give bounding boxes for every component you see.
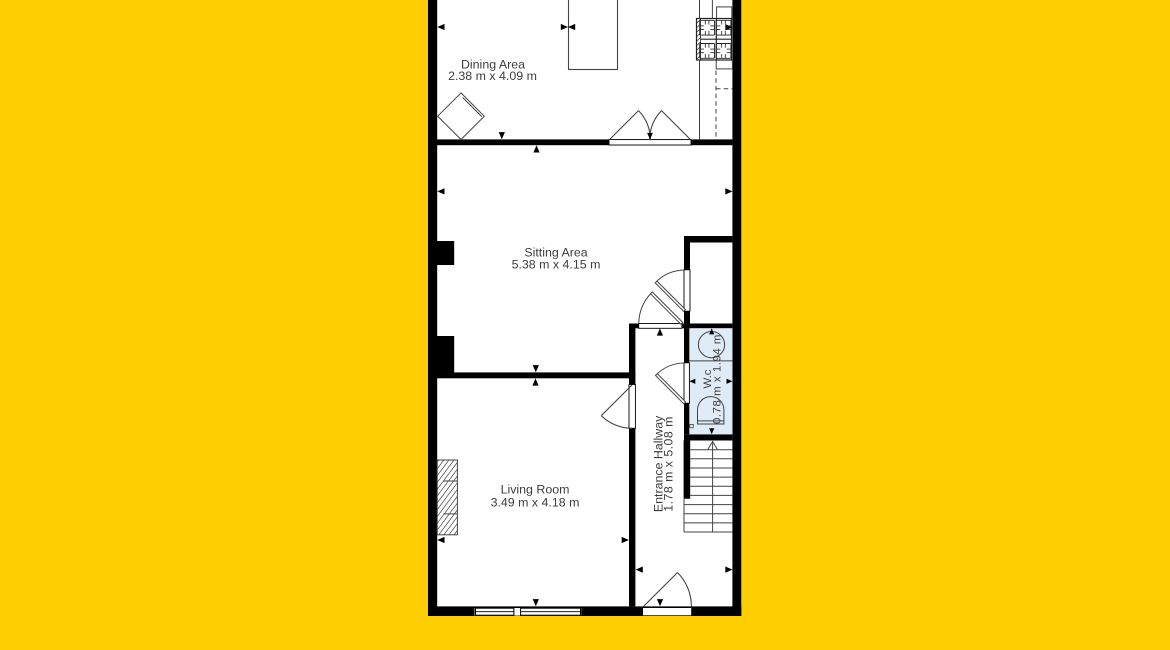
svg-text:5.38 m x 4.15 m: 5.38 m x 4.15 m bbox=[512, 258, 601, 272]
svg-text:0.78 m x 1.94 m: 0.78 m x 1.94 m bbox=[712, 334, 724, 424]
svg-text:1.78 m x 5.08 m: 1.78 m x 5.08 m bbox=[662, 416, 676, 512]
svg-text:3.49 m x 4.18 m: 3.49 m x 4.18 m bbox=[491, 496, 580, 510]
svg-text:2.38 m x 4.09 m: 2.38 m x 4.09 m bbox=[448, 69, 537, 83]
svg-text:Living Room: Living Room bbox=[501, 483, 570, 497]
